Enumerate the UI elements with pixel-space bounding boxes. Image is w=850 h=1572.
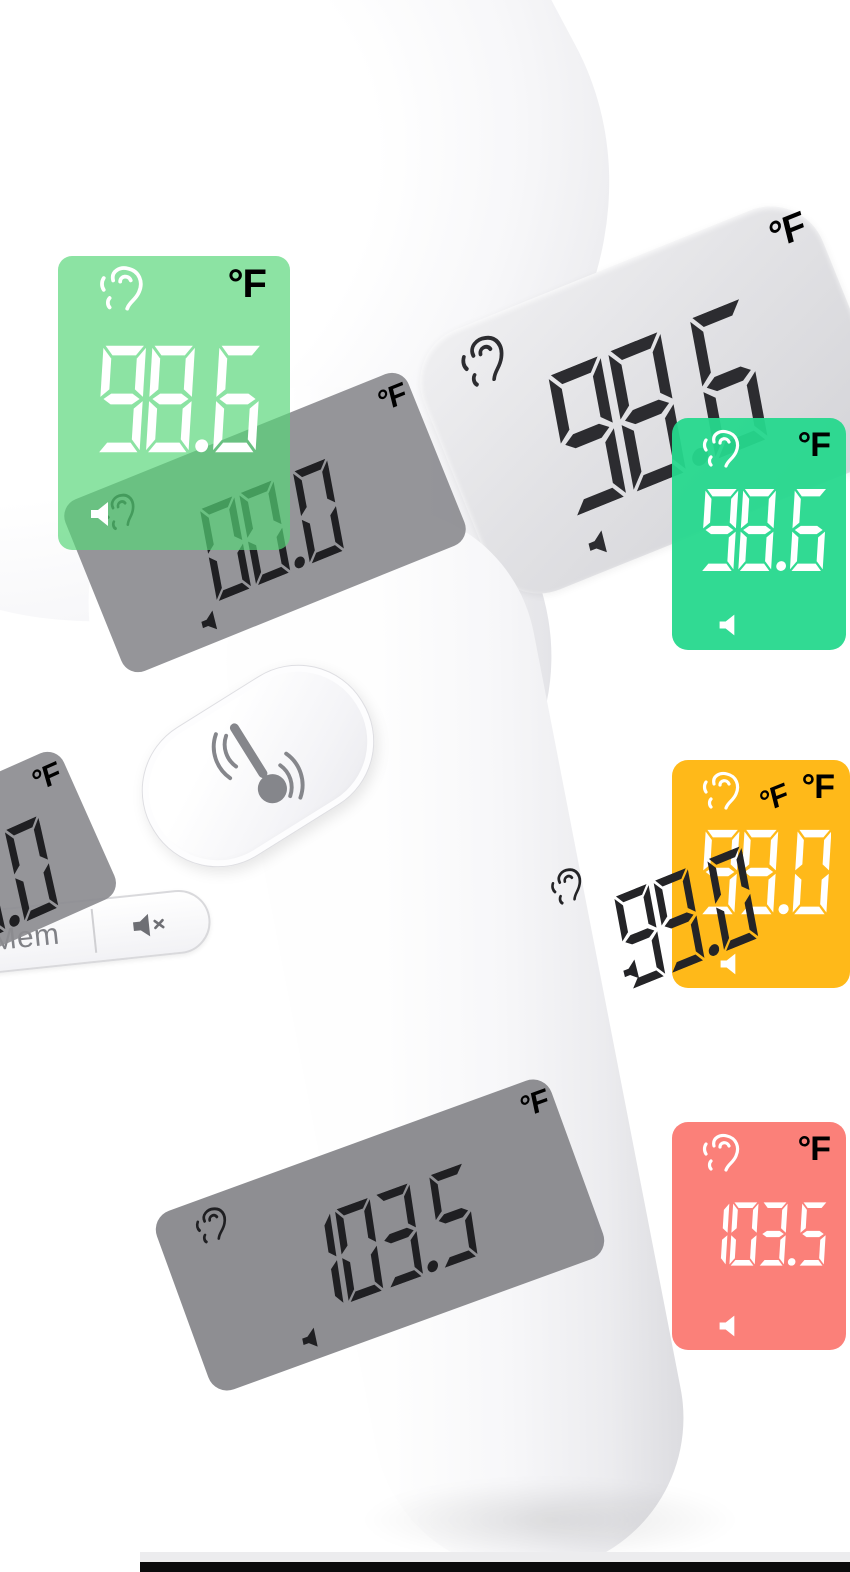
mute-speaker-icon (131, 910, 174, 940)
ear-icon (92, 264, 146, 316)
lcd-mockup-red-fever: °F (672, 1122, 846, 1350)
mute-button (92, 889, 211, 961)
speaker-icon (583, 524, 616, 562)
unit-label: °F (228, 264, 266, 304)
temperature-reading (696, 478, 830, 587)
unit-label: °F (375, 378, 409, 418)
ear-icon (187, 1201, 233, 1252)
thermometer-icon (195, 698, 321, 835)
lcd-mockup-green-normal-left: °F (58, 256, 290, 550)
unit-label: °F (29, 758, 63, 799)
temperature-reading (92, 336, 266, 467)
unit-label: °F (802, 770, 834, 804)
unit-label: °F (766, 206, 809, 257)
thermometer-product-photo: °F Mem °F (0, 0, 850, 1572)
unit-label: °F (798, 1132, 830, 1166)
speaker-icon (88, 499, 118, 529)
unit-label: °F (757, 779, 791, 819)
speaker-icon (298, 1322, 326, 1354)
speaker-icon (717, 1313, 743, 1339)
ear-icon (542, 862, 588, 914)
speaker-icon (717, 612, 743, 638)
lcd-mockup-green-normal-right: °F (672, 418, 846, 650)
ear-icon (696, 428, 742, 472)
handle-shadow (360, 1480, 740, 1560)
ear-icon (449, 326, 514, 399)
thermometer-handle (200, 480, 710, 1572)
unit-label: °F (798, 428, 830, 462)
unit-label: °F (518, 1085, 551, 1124)
bottom-divider-light (140, 1552, 850, 1562)
bottom-divider-dark (140, 1562, 850, 1572)
ear-icon (696, 1132, 742, 1176)
temperature-reading (696, 1182, 830, 1291)
